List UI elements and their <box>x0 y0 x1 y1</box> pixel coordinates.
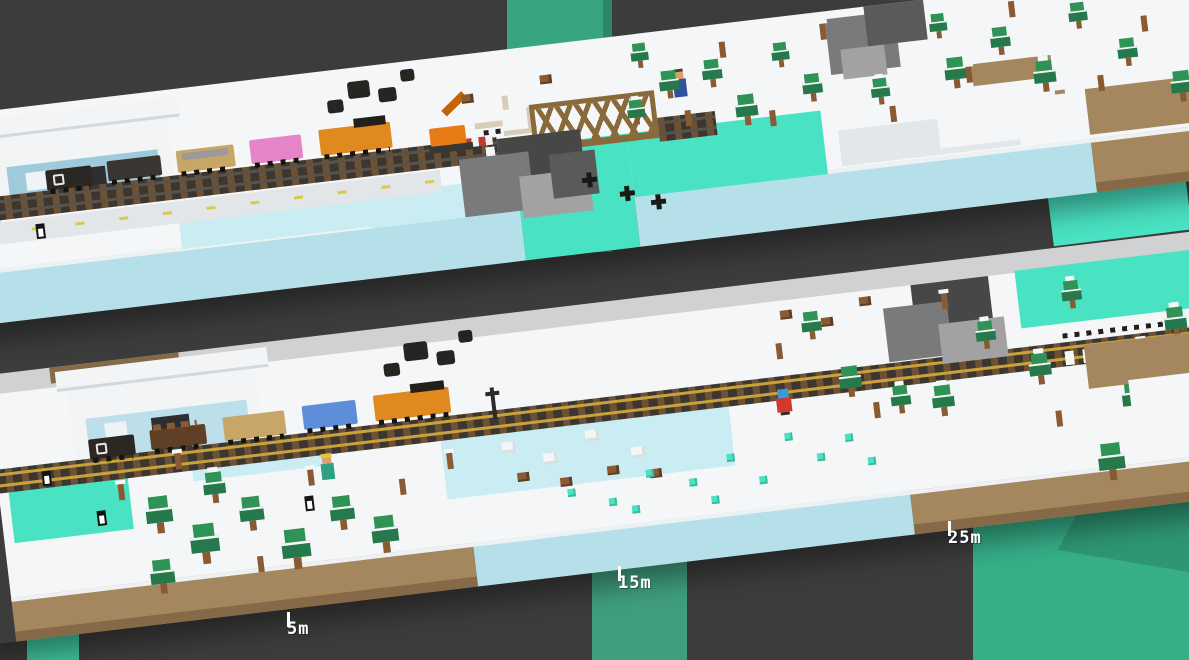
pine-tree <box>656 65 681 100</box>
marker-label: 5m <box>287 619 309 639</box>
crate <box>461 94 474 104</box>
smoke-puff <box>403 341 429 362</box>
pine-tree <box>836 360 864 399</box>
bird <box>619 185 636 202</box>
pine-tree <box>236 490 267 532</box>
pine-tree <box>200 466 228 505</box>
crate <box>607 465 620 475</box>
pine-tree <box>800 68 825 103</box>
crystal <box>632 505 641 514</box>
pine-tree <box>699 54 724 89</box>
crate <box>543 452 558 465</box>
crystal <box>868 457 877 466</box>
marker-label: 15m <box>618 573 652 593</box>
crystal <box>817 453 826 462</box>
pine-tree <box>988 21 1013 56</box>
crystal <box>645 469 654 478</box>
pine-tree <box>868 73 892 106</box>
smoke-puff <box>347 80 371 99</box>
crate <box>631 446 646 459</box>
smoke-puff <box>458 330 473 344</box>
bird <box>650 193 667 210</box>
crate <box>539 74 552 84</box>
pine-tree <box>628 38 650 69</box>
pine-tree <box>142 489 176 535</box>
crystal <box>609 498 618 507</box>
crystal <box>784 432 793 441</box>
pine-tree <box>1168 64 1189 103</box>
crystal <box>845 433 854 442</box>
pine-tree <box>799 306 824 341</box>
smoke-puff <box>327 99 344 114</box>
bird <box>581 172 598 189</box>
rock <box>863 0 927 46</box>
pine-tree <box>147 553 178 595</box>
crystal <box>689 478 698 487</box>
pine-tree <box>927 9 949 40</box>
pine-tree <box>1115 32 1140 67</box>
pine-tree <box>1031 54 1059 93</box>
pine-tree <box>769 37 791 68</box>
pine-tree <box>888 380 913 415</box>
train-car-blue <box>301 400 357 430</box>
crate <box>517 472 530 482</box>
crate <box>821 317 834 327</box>
smoke-puff <box>436 350 456 366</box>
pine-tree <box>625 95 647 126</box>
pine-tree <box>1026 347 1054 386</box>
crate <box>859 296 872 306</box>
pine-tree <box>368 508 402 554</box>
train-car-tank <box>88 434 136 459</box>
smoke-puff <box>378 87 398 103</box>
rail <box>659 126 717 136</box>
pine-tree <box>278 521 315 571</box>
crystal <box>711 495 720 504</box>
train-car-barrels <box>149 424 207 450</box>
crystal <box>759 476 768 485</box>
train-car-pink <box>249 134 303 164</box>
crate <box>780 309 793 319</box>
crystal <box>726 453 735 462</box>
penguin <box>35 223 46 239</box>
pine-tree <box>732 88 760 127</box>
pine-tree <box>929 379 957 418</box>
pine-tree <box>1095 436 1129 482</box>
crate <box>584 429 599 442</box>
game-viewport[interactable]: 5m 15m 25m <box>0 0 1189 660</box>
smoke-puff <box>383 362 400 377</box>
teal-pillar-15m <box>592 556 687 660</box>
crate <box>560 477 573 487</box>
explorer-character <box>775 388 793 416</box>
bare-tree <box>1005 0 1017 18</box>
crate <box>501 441 516 454</box>
penguin <box>96 510 107 526</box>
pine-tree <box>1059 275 1084 310</box>
crystal <box>567 488 576 497</box>
pine-tree <box>327 489 358 531</box>
penguin <box>41 470 52 486</box>
pine-tree <box>973 315 998 350</box>
marker-label: 25m <box>948 528 982 548</box>
penguin <box>304 495 315 511</box>
pine-tree <box>1066 0 1090 30</box>
smoke-puff <box>400 68 415 82</box>
train-car-tank <box>45 165 93 190</box>
pine-tree <box>186 516 223 566</box>
